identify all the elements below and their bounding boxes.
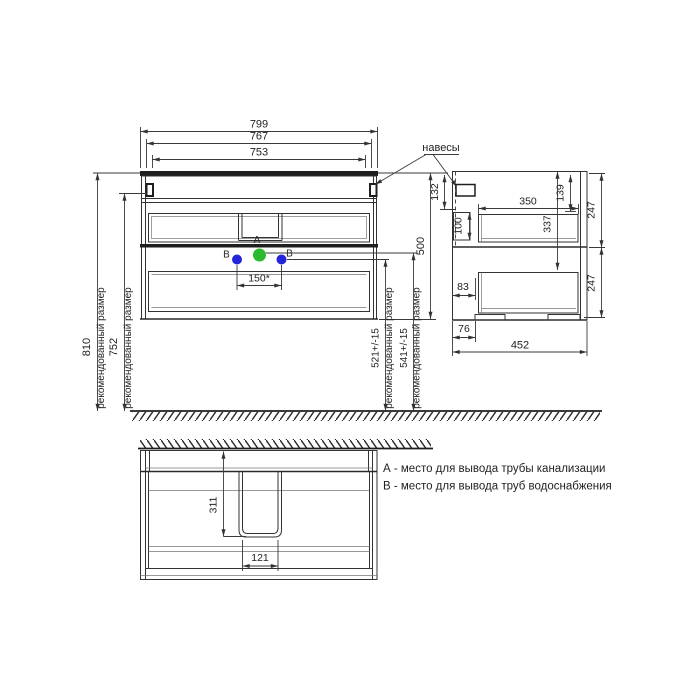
water-point-b-left [232, 255, 242, 265]
front-right-dimensions: 132 500 541+/-15 рекомендованный размер … [371, 173, 457, 411]
dim-hanger-height: 752 [108, 338, 120, 356]
dim-front-inset: 83 [457, 281, 469, 293]
side-hanger [456, 185, 475, 197]
legend: А - место для вывода трубы канализации В… [383, 463, 612, 493]
dim-depth: 452 [511, 340, 529, 352]
dim-b-level-note: рекомендованный размер [384, 287, 395, 409]
side-view [453, 172, 588, 321]
legend-line-b: В - место для вывода труб водоснабжения [383, 481, 612, 493]
point-b-left-label: В [223, 250, 230, 261]
vanity-technical-drawing: А В В 150* 799 767 753 810 рекомендованн… [0, 0, 700, 700]
dim-top-section-height: 247 [586, 201, 598, 219]
dim-inner-depth: 350 [519, 196, 537, 208]
siphon-cutout-plan-outer [239, 472, 282, 537]
front-left-dimensions: 810 рекомендованный размер 752 рекомендо… [81, 173, 147, 411]
dim-bottom-section-height: 247 [586, 274, 598, 292]
dim-cutout-depth: 311 [208, 496, 220, 513]
dim-inner-height: 337 [542, 215, 554, 233]
dim-plinth-inset: 76 [458, 323, 470, 335]
dim-cabinet-height: 500 [415, 237, 427, 255]
side-view-dimensions: 350 139 337 100 83 76 452 247 247 [453, 172, 606, 357]
dim-b-spacing: 150* [248, 273, 270, 285]
water-point-b-right [277, 255, 287, 265]
dim-countertop-width: 799 [250, 119, 268, 131]
side-bottom-drawer [479, 273, 579, 314]
dim-hanger-height-note: рекомендованный размер [123, 287, 134, 409]
siphon-cutout-plan-inner [243, 472, 279, 534]
floor-hatch [132, 412, 600, 421]
point-b-right-label: В [286, 249, 293, 260]
hangers-label: навесы [422, 142, 460, 154]
dim-body-width: 767 [250, 131, 268, 143]
wall-line [138, 439, 433, 449]
dim-a-level-note: рекомендованный размер [412, 287, 423, 409]
dim-total-height: 810 [81, 338, 93, 356]
pipe-points: А В В 150* [223, 235, 417, 290]
dim-a-level: 541+/-15 [399, 328, 410, 368]
front-top-dimensions: 799 767 753 [141, 119, 378, 169]
dim-hanger-span: 753 [250, 147, 268, 159]
drain-point-a [253, 249, 266, 262]
dim-total-height-note: рекомендованный размер [96, 287, 107, 409]
countertop [140, 171, 378, 176]
dim-rail-height: 100 [453, 217, 465, 235]
hangers-callout: навесы [375, 142, 460, 187]
left-hanger [147, 184, 154, 196]
wall-hatch [140, 439, 431, 448]
side-top-drawer [479, 215, 579, 243]
dim-cutout-width: 121 [251, 552, 269, 564]
right-hanger [370, 184, 377, 196]
dim-top-inset: 139 [555, 184, 567, 202]
point-a-label: А [254, 235, 261, 246]
legend-line-a: А - место для вывода трубы канализации [383, 463, 605, 475]
dim-b-level: 521+/-15 [371, 328, 382, 368]
floor-line [130, 411, 602, 421]
